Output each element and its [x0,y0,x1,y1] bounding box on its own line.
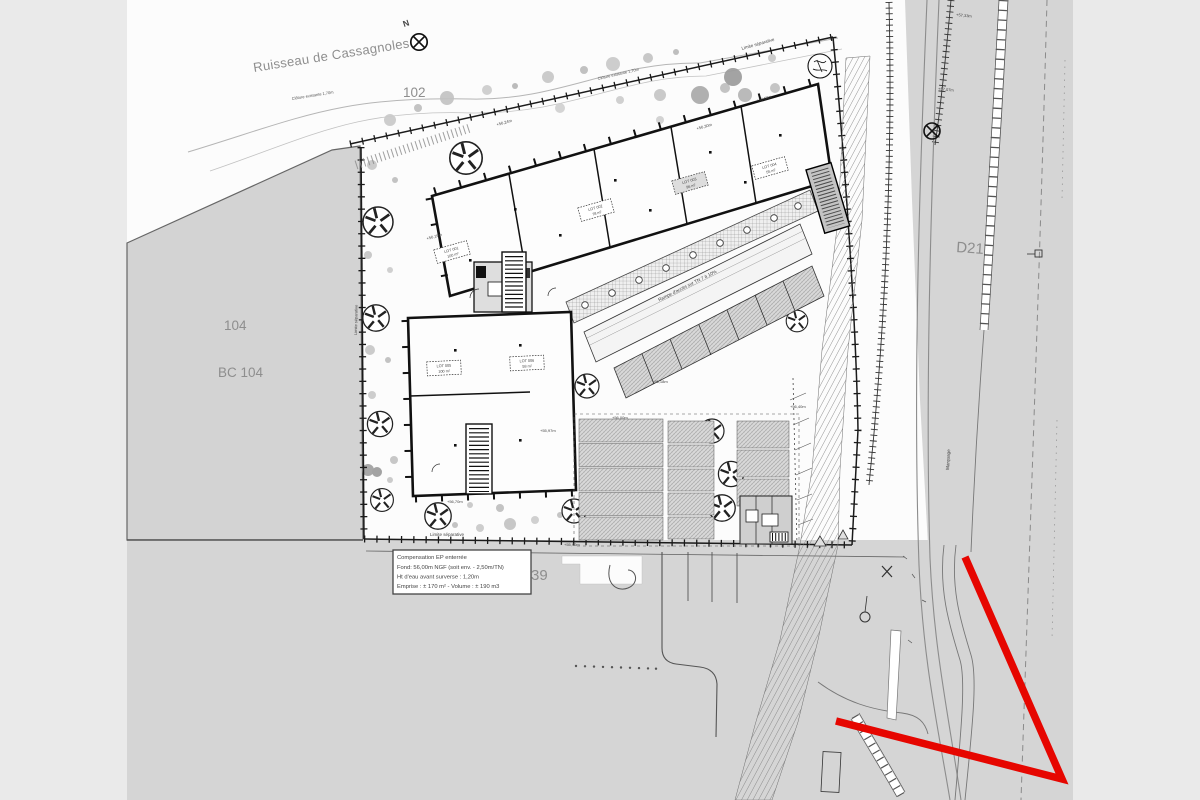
lower-parking [574,414,799,546]
info-line-3: Ht d'eau avant surverse : 1,20m [397,575,479,581]
info-box: Compensation EP enterrée Fond: 56,00m NG… [393,550,531,594]
info-line-2: Fond: 56,00m NGF (soit env. - 2,50m/TN) [397,565,504,571]
svg-text:+55,90m: +55,90m [564,542,580,547]
svg-text:+56,40m: +56,40m [790,404,806,409]
road-d21-label: D21 [956,239,985,258]
svg-text:LOT 006: LOT 006 [519,359,534,364]
svg-text:+55,97m: +55,97m [540,428,556,433]
parcel-104-label: 104 [224,318,247,333]
lot-label: LOT 00658 m² [510,355,545,371]
info-line-1: Compensation EP enterrée [397,555,467,561]
svg-text:+56,70m: +56,70m [447,499,463,504]
svg-text:+56,00m: +56,00m [612,415,628,420]
parcel-39-label: 39 [531,567,548,584]
svg-text:58 m²: 58 m² [522,364,533,369]
boundary-left-label: Limite séparative [353,304,359,335]
annex-rooms [740,496,792,544]
parcel-bc104-label: BC 104 [218,365,264,380]
north-compass-icon [411,34,427,50]
svg-text:LOT 005: LOT 005 [436,364,451,369]
parcel-102-label: 102 [403,85,426,100]
lot-label: LOT 005100 m² [427,360,462,376]
boundary-bottom-label: Limite séparative [430,532,465,537]
building-south [405,288,576,499]
existing-tree-icon [808,54,832,78]
svg-text:+56,18m: +56,18m [652,379,668,384]
svg-text:100 m²: 100 m² [438,369,451,374]
site-plan-drawing: Rampe d'accès sur TN 7 à 10% [0,0,1200,800]
info-line-4: Emprise : ± 170 m² - Volume : ± 190 m3 [397,584,499,590]
